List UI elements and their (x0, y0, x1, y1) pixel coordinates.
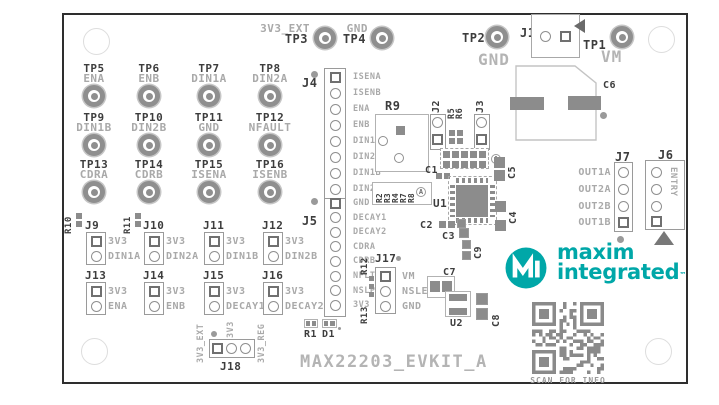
j18-net-label: 3V3_REG (258, 311, 267, 363)
c1-pad (436, 173, 442, 179)
logo-word2-line: integrated™ (557, 262, 686, 285)
c9-pad (462, 240, 471, 249)
jumper-ref-label: J12 (262, 220, 283, 231)
logo-word1: maxim (557, 242, 686, 262)
d1-pad (324, 321, 328, 326)
j4-pin (330, 88, 341, 99)
tp-net-label: ENB (117, 74, 181, 84)
program-header-pad (470, 161, 477, 168)
jumper-top-net: 3V3 (285, 237, 305, 247)
jumper-pin1 (268, 286, 279, 297)
jumper-pin1 (209, 286, 220, 297)
maxim-logo-icon (505, 247, 547, 289)
jumper-pin (91, 251, 102, 262)
j5-ref-label: J5 (302, 215, 317, 227)
j5-pin-label: CDRA (353, 243, 375, 252)
test-point-tp15: TP15ISENA (177, 160, 241, 203)
c6-pad (568, 96, 601, 110)
j18-pin1-dot (211, 331, 217, 337)
j3-ref-label: J3 (476, 93, 486, 113)
j18-pin1 (212, 343, 223, 354)
c6-ref-label: C6 (603, 81, 616, 91)
logo-word2: integrated (557, 260, 679, 284)
jumper-ref-label: J11 (203, 220, 224, 231)
jumper-ref-label: J15 (203, 270, 224, 281)
jumper-top-net: 3V3 (108, 287, 128, 297)
j17-pin-label: VM (402, 272, 415, 282)
c3-pad (459, 228, 469, 238)
test-point-pad (198, 134, 220, 156)
test-point-tp12: TP12NFAULT (238, 113, 302, 156)
tp-net-label: ISENA (177, 170, 241, 180)
jumper-pin (209, 251, 220, 262)
j4-pin (330, 120, 341, 131)
r6-ref-label: R6 (456, 97, 465, 119)
r12-pad (369, 276, 374, 281)
jumper-pin1 (91, 236, 102, 247)
j4-pin-label: ISENA (353, 73, 381, 82)
rbank-label: R8 (408, 184, 416, 203)
jumper-top-net: 3V3 (226, 237, 246, 247)
j1-connector (531, 14, 580, 58)
j18-pin (226, 343, 237, 354)
mounting-hole (648, 26, 675, 53)
program-header-pad (452, 151, 459, 158)
j1-polarity-triangle-icon (574, 19, 585, 33)
j3-pin (476, 117, 487, 128)
j17-pin (380, 301, 391, 312)
j4-pin (330, 104, 341, 115)
j4-pin (330, 184, 341, 195)
test-point-tp8: TP8DIN2A (238, 64, 302, 107)
mounting-hole (83, 28, 110, 55)
j5-pin1-dot (311, 198, 318, 205)
test-point-pad (198, 181, 220, 203)
j5-pin (330, 285, 341, 296)
r9-pad (396, 126, 405, 135)
j18-ref-label: J18 (220, 361, 241, 372)
r11-ref-label: R11 (124, 210, 133, 234)
tp-net-label: DIN2B (117, 123, 181, 133)
c5-pad (494, 170, 505, 181)
r1-ref-label: R1 (304, 330, 317, 340)
mounting-hole (81, 338, 108, 365)
tp-net-label: ISENB (238, 170, 302, 180)
test-point-tp11: TP11GND (177, 113, 241, 156)
u1-ref-label: U1 (433, 198, 447, 209)
c6-polarity-dot (600, 112, 607, 119)
test-point-pad (259, 85, 281, 107)
test-point-pad (83, 134, 105, 156)
jumper-ref-label: J9 (85, 220, 99, 231)
r1-pad (312, 321, 316, 326)
program-header-pad (452, 161, 459, 168)
j5-pin (330, 271, 341, 282)
j17-ref-label: J17 (375, 253, 396, 264)
j5-pin (330, 227, 341, 238)
j17-pin (380, 286, 391, 297)
r5-pad (449, 130, 455, 136)
j6-pin1 (651, 216, 662, 227)
c7-pad (430, 281, 440, 292)
jumper-ref-label: J14 (143, 270, 164, 281)
d1-ref-label: D1 (322, 330, 335, 340)
test-point-tp2 (486, 26, 508, 48)
u2-pad (449, 308, 467, 315)
r10-pad (76, 213, 82, 219)
pcb-board: 3V3_EXT TP3 GND TP4 TP2 GND J1 TP1 VM C6… (62, 13, 688, 384)
test-point-pad (83, 181, 105, 203)
jumper-pin (149, 251, 160, 262)
j6-pin (651, 167, 662, 178)
r5-pad (449, 138, 455, 144)
logo-tm: ™ (679, 271, 686, 279)
j5-pin1 (330, 198, 341, 209)
jumper-pin (209, 301, 220, 312)
test-point-pad (83, 85, 105, 107)
program-header-pad (461, 161, 468, 168)
jumper-ref-label: J10 (143, 220, 164, 231)
program-header-pad (470, 151, 477, 158)
c8-pad (476, 308, 488, 320)
vm-big-label: VM (601, 49, 622, 65)
jumper-pin (149, 301, 160, 312)
j4-pin-label: ISENB (353, 89, 381, 98)
j4-pin (330, 168, 341, 179)
jumper-pin1 (149, 236, 160, 247)
c6-pad (510, 97, 544, 110)
c2-pad (448, 221, 455, 228)
test-point-tp10: TP10DIN2B (117, 113, 181, 156)
jumper-top-net: 3V3 (108, 237, 128, 247)
j5-pin (330, 212, 341, 223)
program-header-pad (443, 151, 450, 158)
r9-hole (378, 136, 388, 146)
qr-code (532, 302, 604, 374)
jumper-pin1 (91, 286, 102, 297)
jumper-pin (268, 251, 279, 262)
j2-ref-label: J2 (432, 93, 442, 113)
c2-pad (439, 221, 446, 228)
jumper-top-net: 3V3 (226, 287, 246, 297)
test-point-pad (198, 85, 220, 107)
d1-pad (330, 321, 335, 326)
j3-pin1 (476, 134, 487, 145)
j2-pin (432, 117, 443, 128)
j1-pin1 (560, 31, 571, 42)
j4-pin-label: ENB (353, 121, 370, 130)
j2-pin1 (432, 134, 443, 145)
r13-ref-label: R13 (361, 300, 370, 324)
test-point-pad (138, 134, 160, 156)
test-point-pad (138, 181, 160, 203)
r12-pad (369, 284, 374, 289)
tp-net-label: GND (177, 123, 241, 133)
c4-ref-label: C4 (509, 204, 519, 224)
c8-pad (476, 293, 488, 305)
c5-ref-label: C5 (508, 159, 518, 179)
jumper-ref-label: J13 (85, 270, 106, 281)
r1-pad (306, 321, 310, 326)
r12-ref-label: R12 (361, 253, 370, 275)
test-point-tp4 (371, 27, 393, 49)
j4-pin1 (330, 72, 341, 83)
marker-a: A (416, 187, 426, 197)
test-point-pad (138, 85, 160, 107)
j18-net-label: 3V3_EXT (197, 311, 206, 363)
test-point-tp7: TP7DIN1A (177, 64, 241, 107)
jumper-top-net: 3V3 (285, 287, 305, 297)
c9-pad (462, 251, 471, 260)
j7-pin (618, 201, 629, 212)
jumper-bottom-net: DIN1B (226, 252, 259, 262)
jumper-bottom-net: DECAY2 (285, 302, 324, 312)
j4-ref-label: J4 (302, 77, 317, 89)
u1-pins (456, 178, 488, 183)
c4-pad (495, 201, 506, 212)
jumper-bottom-net: DIN1A (108, 252, 141, 262)
tp-net-label: DIN2A (238, 74, 302, 84)
r10-pad (76, 221, 82, 227)
j17-dot (396, 256, 401, 261)
j7-pin-label: OUT2A (569, 185, 611, 195)
qr-caption: SCAN FOR INFO (520, 377, 616, 385)
j5-pin (330, 256, 341, 267)
program-header-pad (479, 151, 486, 158)
j7-pin-label: OUT1A (569, 168, 611, 178)
program-header-pad (461, 151, 468, 158)
r10-ref-label: R10 (65, 210, 74, 234)
program-header-pad (443, 161, 450, 168)
maxim-logo-text: maxim integrated™ (557, 242, 686, 285)
j5-pin-label: DECAY2 (353, 228, 387, 237)
c8-ref-label: C8 (492, 307, 502, 327)
jumper-pin1 (268, 236, 279, 247)
j4-pin-label: ENA (353, 105, 370, 114)
j7-pin-label: OUT1B (569, 218, 611, 228)
r9-ref-label: R9 (385, 100, 400, 112)
test-point-tp16: TP16ISENB (238, 160, 302, 203)
jumper-bottom-net: ENA (108, 302, 128, 312)
j7-pin (618, 167, 629, 178)
test-point-tp1 (611, 26, 633, 48)
jumper-top-net: 3V3 (166, 237, 186, 247)
u1-pins (450, 185, 455, 217)
r11-pad (135, 213, 141, 219)
jumper-pin1 (149, 286, 160, 297)
tp-net-label: CDRB (117, 170, 181, 180)
tp3-ref-label: TP3 (224, 33, 308, 45)
test-point-pad (259, 134, 281, 156)
j5-pin-label: DECAY1 (353, 214, 387, 223)
j17-pin1 (380, 271, 391, 282)
j17-pin-label: GND (402, 302, 422, 312)
jumper-pin (91, 301, 102, 312)
jumper-top-net: 3V3 (166, 287, 186, 297)
jumper-bottom-net: DIN2B (285, 252, 318, 262)
j7-pin (618, 184, 629, 195)
c5-pad (494, 157, 505, 168)
jumper-pin1 (209, 236, 220, 247)
test-point-tp6: TP6ENB (117, 64, 181, 107)
r13-pad (369, 292, 374, 297)
jumper-ref-label: J16 (262, 270, 283, 281)
c3-ref-label: C3 (442, 232, 455, 242)
tp-net-label: NFAULT (238, 123, 302, 133)
c9-ref-label: C9 (474, 239, 484, 259)
test-point-tp14: TP14CDRB (117, 160, 181, 203)
j6-pin (651, 184, 662, 195)
c4-pad (495, 220, 506, 231)
jumper-bottom-net: DIN2A (166, 252, 199, 262)
test-point-pad (259, 181, 281, 203)
j7-pin-label: OUT2B (569, 202, 611, 212)
d1-dot (338, 327, 341, 330)
program-header-pad (479, 161, 486, 168)
r6-pad (457, 130, 463, 136)
r6-pad (457, 138, 463, 144)
j5-pin (330, 300, 341, 311)
u1-body (456, 185, 488, 217)
jumper-bottom-net: ENB (166, 302, 186, 312)
j6-pin (651, 201, 662, 212)
j18-pin (240, 343, 251, 354)
r11-pad (135, 221, 141, 227)
tp4-ref-label: TP4 (314, 33, 366, 45)
j5-pin (330, 241, 341, 252)
j7-pin1 (618, 217, 629, 228)
j4-pin (330, 152, 341, 163)
j5-pin-label: GND (353, 199, 370, 208)
j4-pin (330, 136, 341, 147)
j6-marking-label: ENTRY (668, 167, 677, 225)
r9-hole (394, 153, 404, 163)
u2-pad (449, 294, 467, 301)
c2-ref-label: C2 (420, 221, 433, 231)
tp2-ref-label: TP2 (462, 32, 485, 44)
mounting-hole (645, 338, 672, 365)
u2-ref-label: U2 (450, 319, 463, 329)
j1-pin (540, 31, 551, 42)
jumper-pin (268, 301, 279, 312)
gnd-big-label: GND (478, 52, 510, 68)
tp-net-label: DIN1A (177, 74, 241, 84)
j18-net-label: 3V3 (227, 311, 236, 338)
c2-pad (457, 219, 466, 228)
board-title: MAX22203_EVKIT_A (300, 354, 488, 371)
j4-pin1-dot (311, 71, 318, 78)
